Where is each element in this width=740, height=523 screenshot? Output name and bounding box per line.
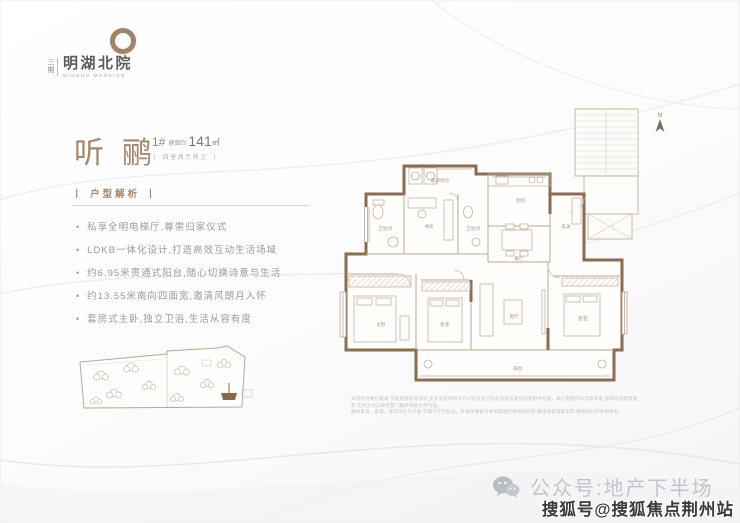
room-label: 卫生间	[466, 225, 480, 232]
feature-item: 套房式主卧,独立卫浴,生活从容有度	[76, 308, 281, 331]
unit-meta: 1# 建面约 141 ㎡ 丨 四室两厅两卫 丨	[152, 133, 272, 161]
feature-item: LDKB一体化设计,打造高效互动生活场域	[76, 239, 281, 262]
room-label: 主卧	[376, 321, 386, 328]
room-label: 玄关	[561, 223, 571, 230]
room-label: 厨房	[516, 197, 526, 204]
compass-label: N	[658, 113, 662, 119]
unit-area-unit: ㎡	[212, 137, 220, 148]
disclaimer-line: 本资料为要约邀请,不构成要约或承诺,买卖双方权利义务以双方签订的商品房买卖合同及…	[351, 396, 639, 409]
analysis-heading: 丨 户型解析 丨	[72, 186, 158, 200]
feature-item: 约6.95米贯通式阳台,随心切换诗意与生活	[76, 262, 281, 285]
compass-icon: N	[651, 110, 669, 138]
disclaimer-line: 图中家具、家电、装饰等仅为示意,不属于交付标准。开发商保留对本资料进行修改的权利…	[351, 409, 639, 416]
site-plan-thumbnail	[74, 345, 254, 413]
room-label: 家政阳台	[431, 177, 450, 184]
brand-name-latin: MINGHU MANSION	[63, 73, 133, 78]
room-label: 卧室	[578, 315, 588, 322]
unit-area-value: 141	[188, 133, 211, 149]
unit-number: 1#	[152, 135, 165, 149]
brand-ring-icon	[110, 28, 136, 54]
brand-name: 明湖北院	[63, 56, 133, 71]
feature-item: 私享全明电梯厅,尊崇归家仪式	[76, 216, 281, 239]
brand-phase-label: 三期	[46, 58, 58, 76]
unit-layout-tag: 丨 四室两厅两卫 丨	[152, 153, 272, 161]
feature-item: 约13.55米南向四面宽,邀清风朗月入怀	[76, 285, 281, 308]
feature-list: 私享全明电梯厅,尊崇归家仪式 LDKB一体化设计,打造高效互动生活场域 约6.9…	[76, 216, 281, 331]
watermark-text: 搜狐号@搜狐焦点荆州站	[542, 496, 734, 520]
room-label: 阳台	[513, 365, 523, 372]
room-label: 餐厅	[514, 255, 524, 262]
room-label: 书房	[424, 223, 434, 230]
disclaimer-text: 本资料为要约邀请,不构成要约或承诺,买卖双方权利义务以双方签订的商品房买卖合同及…	[351, 396, 639, 416]
brand-logo: 三期 明湖北院 MINGHU MANSION	[46, 26, 166, 82]
wechat-icon	[492, 475, 520, 499]
room-label: 卧室	[440, 321, 450, 328]
unit-area-prefix: 建面约	[168, 138, 186, 147]
analysis-divider	[72, 205, 310, 206]
room-label: 客厅	[509, 313, 519, 320]
floor-plan: 家政阳台 书房 卫生间 卫生间 厨房 餐厅 玄关 客厅 主卧 卧室 卧室 阳台	[336, 102, 648, 396]
room-label: 卫生间	[378, 225, 392, 232]
